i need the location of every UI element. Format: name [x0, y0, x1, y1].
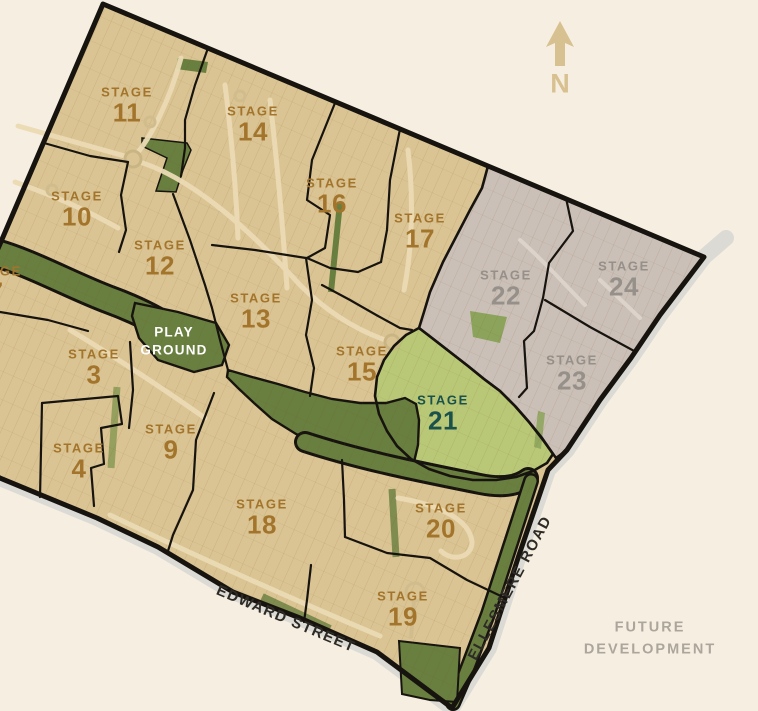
stage-15-label: STAGE15	[336, 345, 388, 386]
stage-17-label: STAGE17	[394, 212, 446, 253]
stage-7-label: STAGE7	[0, 265, 22, 306]
stage-21-label: STAGE21	[417, 394, 469, 435]
stage-11-label: STAGE11	[101, 86, 153, 127]
stage-23-label: STAGE23	[546, 354, 598, 395]
labels-overlay: STAGE3 STAGE4 STAGE7 STAGE9 STAGE10 STAG…	[0, 0, 758, 711]
edward-street-label: EDWARD STREET	[214, 582, 358, 656]
stage-4-label: STAGE4	[53, 442, 105, 483]
stage-18-label: STAGE18	[236, 498, 288, 539]
future-development-label: FUTUREDEVELOPMENT	[584, 617, 716, 662]
stage-3-label: STAGE3	[68, 348, 120, 389]
compass-north-label: N	[550, 69, 570, 100]
stage-22-label: STAGE22	[480, 269, 532, 310]
stage-16-label: STAGE16	[306, 177, 358, 218]
stage-19-label: STAGE19	[377, 590, 429, 631]
stage-12-label: STAGE12	[134, 239, 186, 280]
masterplan-map: STAGE3 STAGE4 STAGE7 STAGE9 STAGE10 STAG…	[0, 0, 758, 711]
stage-20-label: STAGE20	[415, 502, 467, 543]
stage-13-label: STAGE13	[230, 292, 282, 333]
stage-14-label: STAGE14	[227, 105, 279, 146]
playground-label: PLAYGROUND	[140, 323, 207, 358]
stage-9-label: STAGE9	[145, 423, 197, 464]
stage-24-label: STAGE24	[598, 260, 650, 301]
stage-10-label: STAGE10	[51, 190, 103, 231]
ellesmere-road-label: ELLESMERE ROAD	[465, 513, 556, 663]
